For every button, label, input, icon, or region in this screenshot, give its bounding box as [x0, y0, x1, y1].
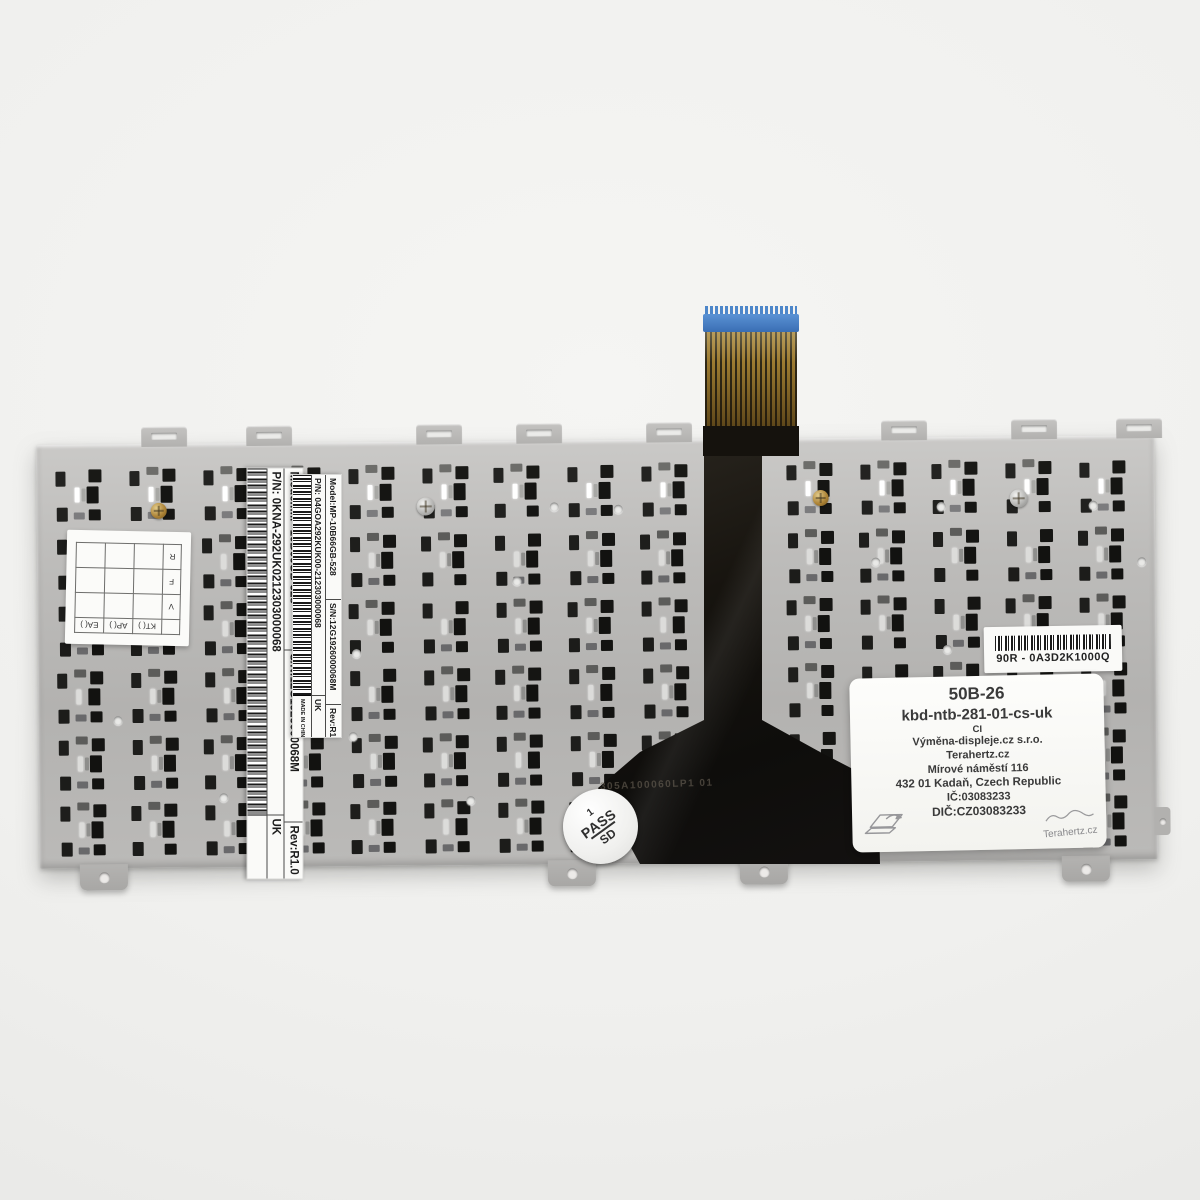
clip-cutout	[813, 617, 817, 630]
clip-cutout	[1111, 746, 1123, 763]
clip-cutout	[221, 735, 233, 743]
clip-cutout	[440, 733, 452, 741]
clip-cutout	[1113, 769, 1125, 780]
mounting-tab	[516, 423, 562, 443]
clip-cutout	[381, 819, 393, 836]
clip-cutout	[528, 533, 541, 546]
clip-cutout	[528, 667, 541, 680]
clip-cutout	[205, 506, 216, 520]
key-clip-cluster	[788, 528, 840, 584]
clip-cutout	[586, 508, 597, 515]
clip-cutout	[224, 846, 235, 853]
qc-side-label: V	[168, 602, 174, 611]
qc-bottom-label: AP( )	[109, 621, 127, 630]
clip-cutout	[77, 781, 88, 788]
clip-cutout	[92, 738, 105, 751]
clip-cutout	[220, 579, 231, 586]
clip-cutout	[787, 600, 797, 615]
key-clip-cluster	[1007, 526, 1059, 582]
clip-cutout	[367, 510, 378, 517]
key-clip-cluster	[131, 801, 183, 857]
clip-cutout	[452, 551, 464, 568]
clip-cutout	[304, 756, 308, 769]
mounting-tab-slot	[256, 432, 282, 439]
clip-cutout	[528, 617, 540, 634]
clip-cutout	[587, 618, 592, 633]
clip-cutout	[675, 639, 687, 650]
key-clip-cluster	[350, 532, 402, 588]
clip-cutout	[424, 639, 435, 653]
clip-cutout	[313, 842, 325, 853]
key-clip-cluster	[498, 797, 550, 853]
clip-cutout	[659, 597, 671, 605]
clip-cutout	[1107, 815, 1111, 828]
clip-cutout	[807, 549, 812, 564]
vent-hole	[219, 793, 228, 802]
clip-cutout	[352, 840, 363, 854]
clip-cutout	[572, 772, 583, 786]
clip-cutout	[880, 480, 885, 495]
clip-cutout	[349, 604, 359, 619]
clip-cutout	[383, 535, 396, 548]
clip-cutout	[456, 641, 468, 652]
mounting-ear-hole	[567, 868, 578, 879]
key-clip-cluster	[1079, 457, 1131, 513]
clip-cutout	[426, 839, 437, 853]
clip-cutout	[1113, 595, 1126, 608]
clip-cutout	[588, 685, 593, 700]
clip-cutout	[350, 804, 360, 819]
clip-cutout	[443, 711, 454, 718]
clip-cutout	[966, 530, 979, 543]
clip-cutout	[879, 505, 890, 512]
clip-cutout	[222, 668, 234, 676]
clip-cutout	[223, 755, 228, 770]
clip-cutout	[1113, 729, 1126, 742]
key-clip-cluster	[131, 668, 183, 724]
clip-cutout	[588, 732, 600, 740]
reseller-sku: 50B-26	[849, 681, 1103, 706]
clip-cutout	[641, 571, 652, 585]
clip-cutout	[1022, 459, 1034, 467]
part-number: P/N: 04GOA292KUK00-212303000068	[312, 475, 325, 696]
clip-cutout	[804, 596, 816, 604]
clip-cutout	[221, 554, 226, 569]
key-clip-cluster	[933, 527, 985, 583]
qc-bottom-label: KT( )	[138, 621, 156, 630]
mounting-ear	[548, 860, 596, 886]
clip-cutout	[152, 756, 157, 771]
clip-cutout	[351, 573, 362, 587]
clip-cutout	[528, 707, 540, 718]
vent-hole	[349, 732, 358, 741]
clip-cutout	[788, 533, 798, 548]
clip-cutout	[676, 706, 688, 717]
clip-cutout	[60, 643, 71, 657]
clip-cutout	[602, 573, 614, 584]
clip-cutout	[89, 509, 101, 520]
clip-cutout	[644, 704, 655, 718]
clip-cutout	[441, 666, 453, 674]
clip-cutout	[148, 802, 160, 810]
mounting-tab-slot	[426, 430, 452, 437]
clip-cutout	[878, 595, 890, 603]
clip-cutout	[788, 667, 798, 682]
clip-cutout	[78, 756, 83, 771]
clip-cutout	[231, 689, 235, 702]
clip-cutout	[521, 553, 525, 566]
clip-cutout	[146, 467, 158, 475]
clip-cutout	[570, 571, 581, 585]
clip-cutout	[150, 822, 155, 837]
clip-cutout	[221, 601, 233, 609]
key-clip-cluster	[495, 664, 547, 720]
clip-cutout	[498, 639, 509, 653]
clip-cutout	[643, 502, 654, 516]
clip-cutout	[958, 481, 962, 494]
clip-cutout	[159, 757, 163, 770]
clip-cutout	[823, 732, 836, 745]
clip-cutout	[76, 714, 87, 721]
key-clip-cluster	[350, 799, 402, 855]
clip-cutout	[570, 705, 581, 719]
clip-cutout	[500, 839, 511, 853]
clip-cutout	[203, 470, 213, 485]
signature: Terahertz.cz	[1041, 807, 1098, 841]
clip-cutout	[456, 735, 469, 748]
clip-cutout	[571, 736, 581, 751]
clip-cutout	[806, 616, 811, 631]
clip-cutout	[449, 485, 453, 498]
vent-hole	[943, 645, 952, 654]
clip-cutout	[966, 664, 979, 677]
clip-cutout	[658, 575, 669, 582]
clip-cutout	[671, 549, 683, 566]
clip-cutout	[162, 469, 175, 482]
clip-cutout	[91, 821, 103, 838]
clip-cutout	[385, 776, 397, 787]
clip-cutout	[380, 484, 392, 501]
clip-cutout	[424, 773, 435, 787]
key-clip-cluster	[569, 664, 621, 720]
layout-code: UK	[312, 696, 325, 737]
clip-cutout	[950, 662, 962, 670]
clip-cutout	[668, 483, 672, 496]
clip-cutout	[376, 821, 380, 834]
clip-cutout	[1032, 480, 1036, 493]
clip-cutout	[933, 532, 943, 547]
clip-cutout	[79, 847, 90, 854]
clip-cutout	[806, 574, 817, 581]
clip-cutout	[205, 641, 216, 655]
vent-hole	[871, 558, 880, 567]
screw-head-brass	[151, 503, 167, 519]
clip-cutout	[1095, 527, 1107, 535]
clip-cutout	[369, 687, 374, 702]
key-clip-cluster	[423, 732, 475, 788]
clip-cutout	[1110, 477, 1122, 494]
clip-cutout	[381, 552, 393, 569]
clip-cutout	[368, 485, 373, 500]
clip-cutout	[495, 504, 506, 518]
clip-cutout	[456, 775, 468, 786]
clip-cutout	[789, 703, 800, 717]
clip-cutout	[532, 840, 544, 851]
clip-cutout	[157, 690, 161, 703]
clip-cutout	[950, 505, 961, 512]
clip-cutout	[643, 638, 654, 652]
clip-cutout	[1008, 567, 1019, 581]
clip-cutout	[642, 602, 652, 617]
clip-cutout	[964, 547, 976, 564]
clip-cutout	[57, 674, 67, 689]
clip-cutout	[382, 642, 394, 653]
clip-cutout	[79, 822, 84, 837]
clip-cutout	[520, 485, 524, 498]
clip-cutout	[309, 753, 321, 770]
key-clip-cluster	[788, 662, 840, 718]
mounting-ear	[1062, 856, 1110, 882]
clip-cutout	[235, 485, 247, 502]
clip-cutout	[449, 620, 453, 633]
clip-cutout	[457, 708, 469, 719]
clip-cutout	[1036, 478, 1048, 495]
clip-cutout	[821, 705, 833, 716]
clip-cutout	[224, 821, 229, 836]
clip-cutout	[660, 642, 671, 649]
clip-cutout	[205, 672, 215, 687]
clip-cutout	[1038, 461, 1051, 474]
clip-cutout	[821, 665, 834, 678]
clip-cutout	[424, 803, 434, 818]
clip-cutout	[674, 683, 686, 700]
clip-cutout	[457, 668, 470, 681]
clip-cutout	[666, 551, 670, 564]
clip-cutout	[219, 534, 231, 542]
clip-cutout	[230, 756, 234, 769]
clip-cutout	[421, 536, 431, 551]
clip-cutout	[164, 671, 177, 684]
clip-cutout	[222, 646, 233, 653]
clip-cutout	[235, 620, 247, 637]
clip-cutout	[94, 844, 106, 855]
clip-cutout	[204, 739, 214, 754]
clip-cutout	[515, 799, 527, 807]
clip-cutout	[425, 706, 436, 720]
clip-cutout	[441, 509, 452, 516]
clip-cutout	[422, 468, 432, 483]
clip-cutout	[77, 647, 88, 654]
clip-cutout	[166, 738, 179, 751]
key-clip-cluster	[860, 459, 912, 515]
key-clip-cluster	[786, 460, 838, 516]
clip-cutout	[602, 533, 615, 546]
clip-cutout	[1097, 594, 1109, 602]
clip-cutout	[368, 578, 379, 585]
clip-cutout	[821, 571, 833, 582]
mounting-tab	[246, 426, 292, 446]
clip-cutout	[220, 466, 232, 474]
clip-cutout	[375, 486, 379, 499]
ribbon-cable	[703, 306, 799, 456]
clip-cutout	[231, 822, 235, 835]
mounting-tab	[646, 422, 692, 442]
mounting-tab	[1116, 418, 1162, 438]
clip-cutout	[934, 568, 945, 582]
screw-head-silver	[417, 497, 435, 515]
clip-cutout	[516, 619, 521, 634]
clip-cutout	[148, 669, 160, 677]
clip-cutout	[952, 548, 957, 563]
clip-cutout	[966, 614, 978, 631]
key-clip-cluster	[133, 735, 185, 791]
clip-cutout	[369, 734, 381, 742]
clip-cutout	[378, 755, 382, 768]
qc-bottom-label: EA( )	[80, 620, 98, 629]
clip-cutout	[521, 687, 525, 700]
clip-cutout	[206, 708, 217, 722]
key-clip-cluster	[787, 595, 839, 651]
clip-cutout	[814, 550, 818, 563]
key-clip-cluster	[349, 599, 401, 655]
clip-cutout	[456, 601, 469, 614]
clip-cutout	[495, 670, 505, 685]
vent-hole	[352, 649, 361, 658]
clip-cutout	[60, 807, 70, 822]
clip-cutout	[961, 616, 965, 629]
clip-cutout	[806, 481, 811, 496]
key-clip-cluster	[59, 735, 111, 791]
clip-cutout	[203, 574, 214, 588]
screw-head-silver	[1010, 489, 1028, 507]
clip-cutout	[1038, 546, 1050, 563]
clip-cutout	[442, 619, 447, 634]
clip-cutout	[223, 486, 228, 501]
clip-cutout	[657, 530, 669, 538]
clip-cutout	[224, 688, 229, 703]
clip-cutout	[1080, 598, 1090, 613]
clip-cutout	[381, 686, 393, 703]
vent-hole	[1137, 557, 1146, 566]
clip-cutout	[454, 574, 466, 585]
clip-cutout	[861, 600, 871, 615]
layout-code: UK	[268, 816, 284, 879]
part-number: P/N: 0KNA-292UK0212303000068	[268, 469, 284, 816]
clip-cutout	[305, 822, 309, 835]
clip-cutout	[156, 488, 160, 501]
clip-cutout	[887, 616, 891, 629]
clip-cutout	[805, 506, 816, 513]
clip-cutout	[568, 602, 578, 617]
key-clip-cluster	[55, 466, 107, 522]
key-clip-cluster	[352, 733, 404, 789]
key-clip-cluster	[421, 531, 473, 587]
clip-cutout	[455, 818, 467, 835]
qc-grid-table: R F V EA( ) AP( ) KT( )	[74, 541, 182, 634]
clip-cutout	[162, 821, 174, 838]
clip-cutout	[523, 620, 527, 633]
clip-cutout	[1098, 504, 1109, 511]
side-tab-hole	[1159, 818, 1166, 825]
mounting-ear	[80, 864, 128, 890]
key-clip-cluster	[568, 597, 620, 653]
key-clip-cluster	[350, 666, 402, 722]
product-photo: { "photo": { "description": "Rear side o…	[0, 0, 1200, 1200]
clip-cutout	[383, 709, 395, 720]
key-clip-cluster	[424, 798, 476, 854]
clip-cutout	[820, 598, 833, 611]
clip-cutout	[512, 666, 524, 674]
clip-cutout	[77, 802, 89, 810]
clip-cutout	[524, 820, 528, 833]
clip-cutout	[569, 535, 579, 550]
clip-cutout	[497, 737, 507, 752]
clip-cutout	[1033, 548, 1037, 561]
clip-cutout	[803, 461, 815, 469]
clip-cutout	[382, 602, 395, 615]
vent-hole	[550, 502, 559, 511]
key-clip-cluster	[859, 527, 911, 583]
clip-cutout	[597, 753, 601, 766]
clip-cutout	[587, 576, 598, 583]
clip-cutout	[1109, 545, 1121, 562]
mounting-ear-hole	[759, 866, 770, 877]
clip-cutout	[230, 487, 234, 500]
clip-cutout	[382, 507, 394, 518]
clip-cutout	[495, 536, 505, 551]
clip-cutout	[950, 528, 962, 536]
clip-cutout	[1099, 479, 1104, 494]
key-clip-cluster	[640, 529, 692, 585]
clip-cutout	[510, 464, 522, 472]
mounting-tab-slot	[1021, 425, 1047, 432]
mounting-tab-slot	[656, 428, 682, 435]
clip-cutout	[594, 484, 598, 497]
clip-cutout	[423, 737, 433, 752]
key-clip-cluster	[641, 461, 693, 517]
clip-cutout	[496, 706, 507, 720]
clip-cutout	[527, 506, 539, 517]
clip-cutout	[1112, 812, 1124, 829]
clip-cutout	[528, 752, 540, 769]
clip-cutout	[88, 688, 100, 705]
clip-cutout	[1104, 548, 1108, 561]
clip-cutout	[1078, 531, 1088, 546]
clip-cutout	[455, 466, 468, 479]
vent-hole	[466, 796, 475, 805]
clip-cutout	[134, 776, 145, 790]
clip-cutout	[673, 616, 685, 633]
clip-cutout	[599, 617, 611, 634]
clip-cutout	[953, 640, 964, 647]
laptop-icon	[862, 809, 913, 840]
clip-cutout	[513, 484, 518, 499]
clip-cutout	[132, 709, 143, 723]
clip-cutout	[887, 481, 891, 494]
clip-cutout	[673, 572, 685, 583]
clip-cutout	[641, 467, 651, 482]
clip-cutout	[1039, 501, 1051, 512]
key-clip-cluster	[348, 464, 400, 520]
clip-cutout	[442, 753, 447, 768]
clip-cutout	[149, 487, 154, 502]
clip-cutout	[92, 644, 104, 655]
clip-cutout	[669, 685, 673, 698]
clip-cutout	[514, 552, 519, 567]
clip-cutout	[818, 615, 830, 632]
clip-cutout	[659, 550, 664, 565]
clip-cutout	[894, 637, 906, 648]
